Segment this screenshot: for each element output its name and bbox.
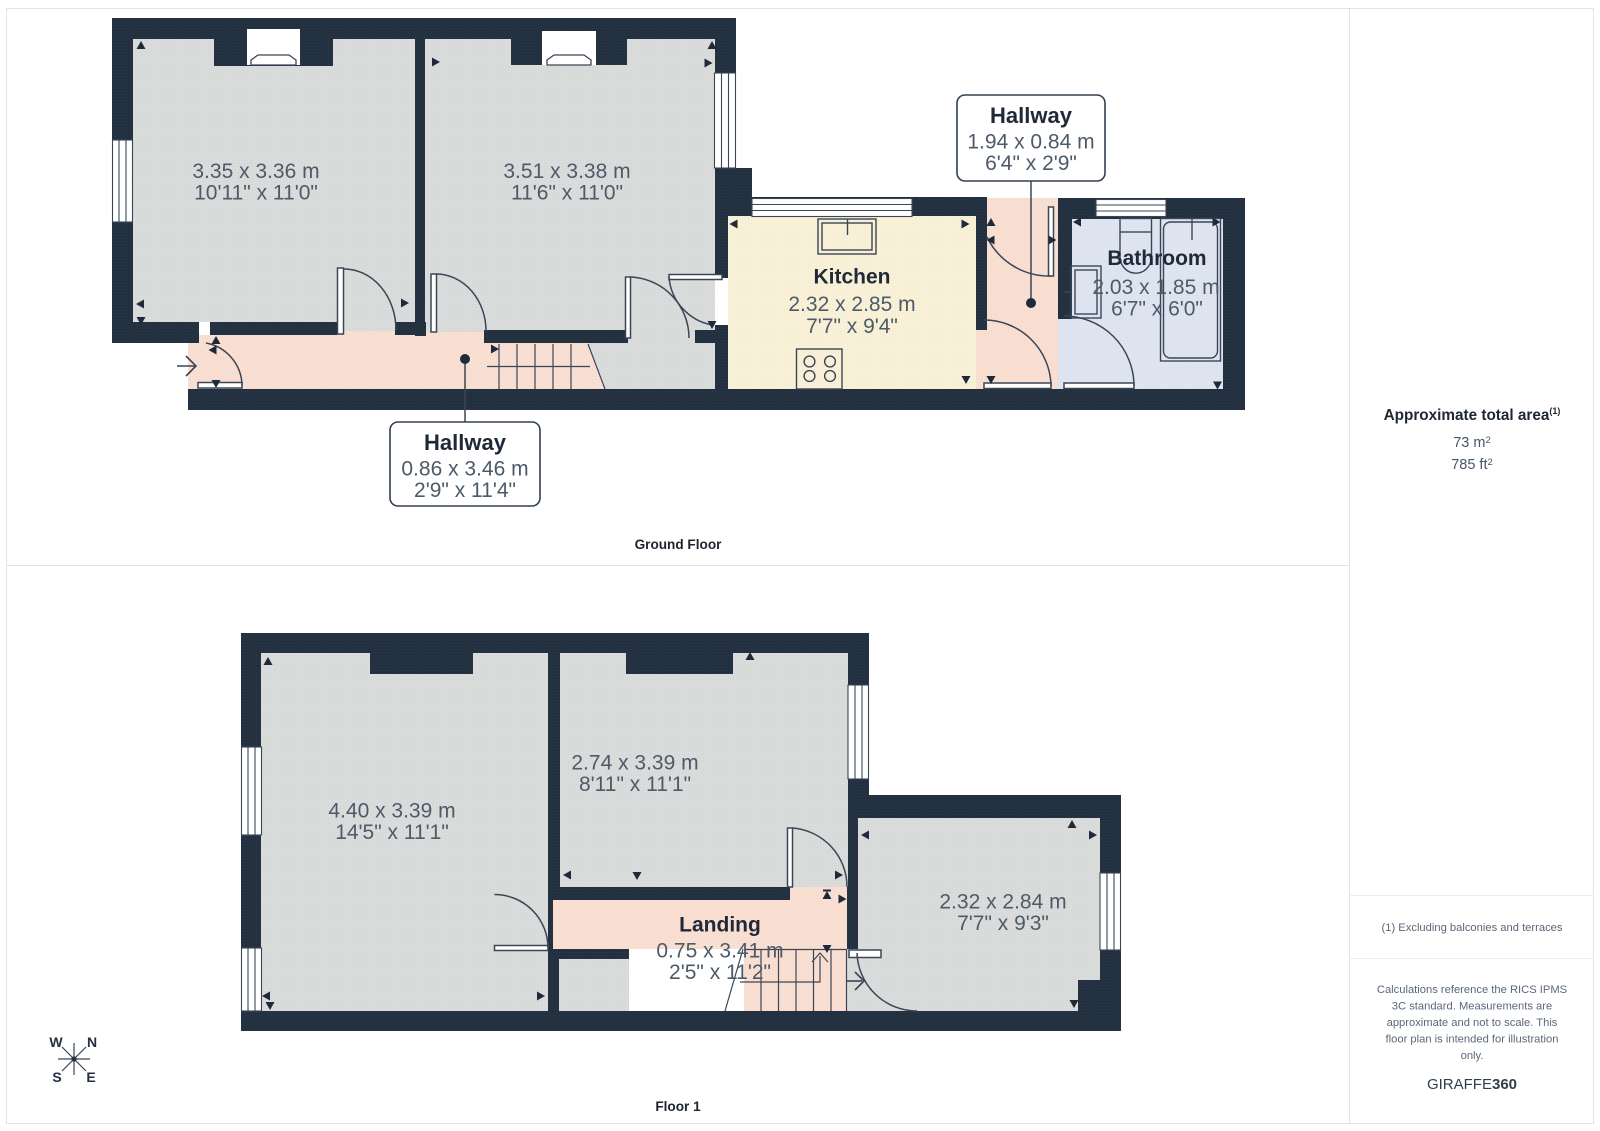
svg-text:GIRAFFE360: GIRAFFE360 [1427,1076,1517,1093]
svg-text:Floor 1: Floor 1 [655,1099,701,1114]
svg-text:8'11" x 11'1": 8'11" x 11'1" [579,773,691,796]
svg-text:4.40 x 3.39 m: 4.40 x 3.39 m [328,800,455,823]
svg-text:0.75 x 3.41 m: 0.75 x 3.41 m [656,940,783,963]
svg-text:2.32 x 2.85 m: 2.32 x 2.85 m [788,293,915,316]
svg-text:E: E [86,1069,95,1085]
svg-text:3.51 x 3.38 m: 3.51 x 3.38 m [503,160,630,183]
svg-text:approximate and not to scale.: approximate and not to scale. This [1387,1017,1558,1029]
svg-text:Hallway: Hallway [990,103,1073,128]
svg-text:W: W [49,1034,63,1050]
svg-text:floor plan is intended for ill: floor plan is intended for illustration [1386,1034,1559,1046]
svg-text:Calculations reference the RIC: Calculations reference the RICS IPMS [1377,984,1567,996]
svg-text:6'4" x 2'9": 6'4" x 2'9" [985,152,1077,175]
svg-text:2.03 x 1.85 m: 2.03 x 1.85 m [1092,276,1219,299]
svg-text:11'6" x 11'0": 11'6" x 11'0" [511,182,623,205]
svg-text:73 m2: 73 m2 [1453,435,1491,451]
svg-text:7'7" x 9'4": 7'7" x 9'4" [806,315,898,338]
svg-text:Approximate total area(1): Approximate total area(1) [1384,406,1561,424]
svg-text:Hallway: Hallway [424,430,507,455]
svg-text:N: N [87,1034,97,1050]
svg-text:Kitchen: Kitchen [813,266,890,289]
svg-text:785 ft2: 785 ft2 [1451,457,1493,473]
svg-text:Bathroom: Bathroom [1107,247,1206,270]
svg-text:2.32 x 2.84 m: 2.32 x 2.84 m [939,891,1066,914]
svg-text:6'7" x 6'0": 6'7" x 6'0" [1111,298,1203,321]
svg-text:(1) Excluding balconies and te: (1) Excluding balconies and terraces [1382,922,1563,934]
svg-text:2'5" x 11'2": 2'5" x 11'2" [669,961,771,984]
svg-text:10'11" x 11'0": 10'11" x 11'0" [194,182,318,205]
svg-text:Ground Floor: Ground Floor [635,537,723,552]
svg-text:7'7" x 9'3": 7'7" x 9'3" [957,912,1049,935]
svg-text:2'9" x 11'4": 2'9" x 11'4" [414,479,516,502]
svg-text:1.94 x 0.84 m: 1.94 x 0.84 m [967,131,1094,154]
svg-text:3C standard. Measurements are: 3C standard. Measurements are [1392,1001,1552,1013]
svg-text:2.74 x 3.39 m: 2.74 x 3.39 m [571,752,698,775]
svg-text:0.86 x 3.46 m: 0.86 x 3.46 m [401,458,528,481]
svg-text:14'5" x 11'1": 14'5" x 11'1" [335,821,449,844]
svg-text:only.: only. [1461,1050,1484,1062]
svg-text:3.35 x 3.36 m: 3.35 x 3.36 m [192,160,319,183]
svg-text:Landing: Landing [679,914,761,937]
svg-text:S: S [52,1069,61,1085]
